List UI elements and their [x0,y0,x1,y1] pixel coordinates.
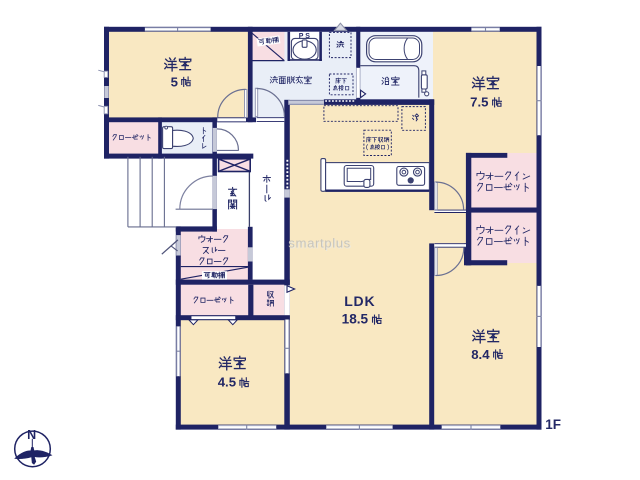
svg-text:smartplus: smartplus [288,236,351,251]
svg-text:P S: P S [299,33,310,40]
svg-text:7.5: 7.5 [470,94,488,109]
svg-text:5: 5 [171,74,178,89]
svg-text:LDK: LDK [344,293,375,309]
svg-text:N: N [27,428,36,442]
svg-text:1F: 1F [545,417,561,432]
svg-text:18.5: 18.5 [342,312,369,327]
svg-text:8.4: 8.4 [471,347,490,362]
svg-text:4.5: 4.5 [218,375,236,390]
